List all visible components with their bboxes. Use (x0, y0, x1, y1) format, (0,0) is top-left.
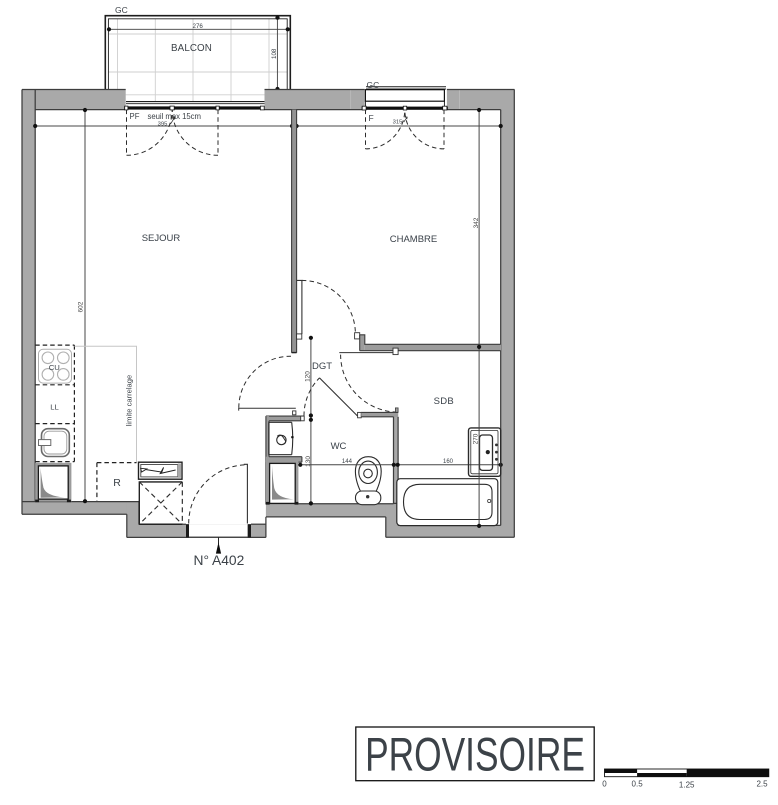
svg-text:PF: PF (130, 112, 140, 121)
svg-text:270: 270 (472, 433, 479, 444)
svg-text:160: 160 (443, 459, 454, 465)
svg-text:limite carrelage: limite carrelage (124, 375, 133, 427)
svg-text:GC: GC (115, 5, 128, 15)
svg-text:GC: GC (367, 80, 380, 90)
svg-text:N° A402: N° A402 (194, 553, 245, 568)
svg-text:2.5: 2.5 (756, 780, 768, 789)
svg-text:SDB: SDB (434, 396, 454, 407)
svg-text:120: 120 (305, 371, 312, 382)
svg-text:395: 395 (158, 122, 168, 128)
svg-text:BALCON: BALCON (171, 43, 212, 54)
svg-text:SEJOUR: SEJOUR (142, 233, 181, 244)
svg-text:F: F (369, 113, 374, 123)
svg-text:LL: LL (50, 403, 59, 412)
svg-text:R: R (113, 477, 121, 489)
svg-text:1.25: 1.25 (679, 781, 695, 790)
svg-text:PROVISOIRE: PROVISOIRE (365, 727, 585, 780)
svg-text:276: 276 (193, 23, 204, 30)
svg-text:315: 315 (393, 120, 403, 126)
svg-text:DGT: DGT (312, 361, 332, 372)
svg-text:144: 144 (342, 459, 353, 465)
svg-text:0.5: 0.5 (632, 780, 644, 789)
svg-text:CU: CU (49, 363, 60, 372)
svg-text:108: 108 (271, 48, 278, 59)
svg-text:342: 342 (473, 217, 480, 228)
svg-text:0: 0 (602, 780, 607, 789)
svg-text:602: 602 (78, 301, 85, 312)
svg-text:WC: WC (331, 441, 347, 452)
svg-text:CHAMBRE: CHAMBRE (390, 234, 438, 245)
svg-text:seuil max 15cm: seuil max 15cm (148, 112, 201, 121)
